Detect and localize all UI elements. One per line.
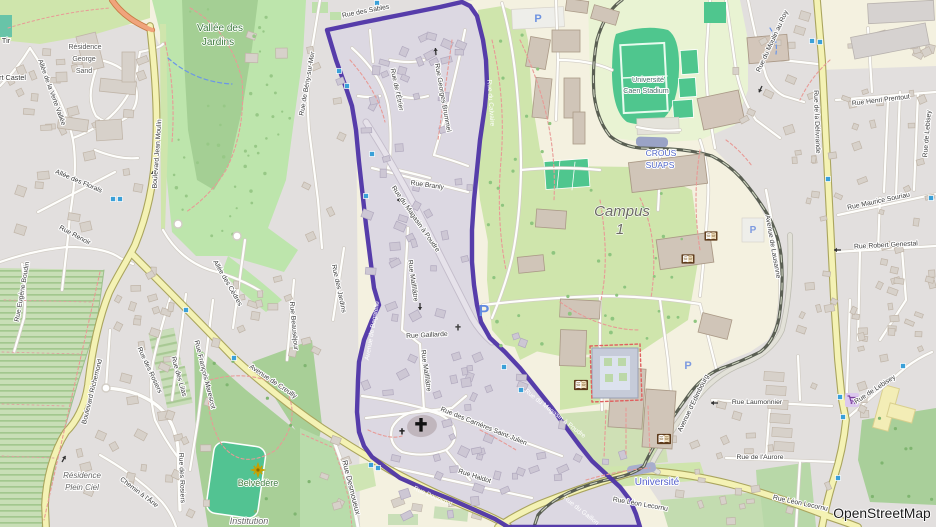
svg-text:Rue de l'Aurore: Rue de l'Aurore xyxy=(736,454,783,461)
svg-text:Belvédère: Belvédère xyxy=(238,478,279,488)
svg-text:CROUS: CROUS xyxy=(646,148,677,158)
svg-text:Campus: Campus xyxy=(594,203,650,220)
svg-text:Institution: Institution xyxy=(230,516,269,526)
svg-text:George: George xyxy=(72,56,95,63)
svg-text:Rue Laumonnier: Rue Laumonnier xyxy=(732,399,783,406)
svg-text:Plein Ciel: Plein Ciel xyxy=(65,483,99,492)
svg-text:Université: Université xyxy=(635,477,680,488)
svg-text:Caen Stadium: Caen Stadium xyxy=(623,86,669,95)
svg-text:P: P xyxy=(684,360,691,372)
svg-text:OpenStreetMap: OpenStreetMap xyxy=(833,506,931,521)
svg-text:P: P xyxy=(750,225,757,236)
svg-text:P: P xyxy=(479,303,490,320)
svg-text:Sand: Sand xyxy=(76,68,92,75)
svg-text:Résidence: Résidence xyxy=(68,44,101,51)
svg-text:1: 1 xyxy=(616,221,624,238)
svg-text:P: P xyxy=(534,13,541,25)
svg-text:Université: Université xyxy=(632,75,664,84)
svg-text:SUAPS: SUAPS xyxy=(646,160,675,170)
svg-text:Vallée des: Vallée des xyxy=(197,23,243,34)
svg-text:Jardins: Jardins xyxy=(202,37,234,48)
svg-text:Rue Albert Castel: Rue Albert Castel xyxy=(0,73,26,82)
svg-text:Résidence: Résidence xyxy=(63,471,101,480)
svg-text:Tir: Tir xyxy=(2,36,11,45)
